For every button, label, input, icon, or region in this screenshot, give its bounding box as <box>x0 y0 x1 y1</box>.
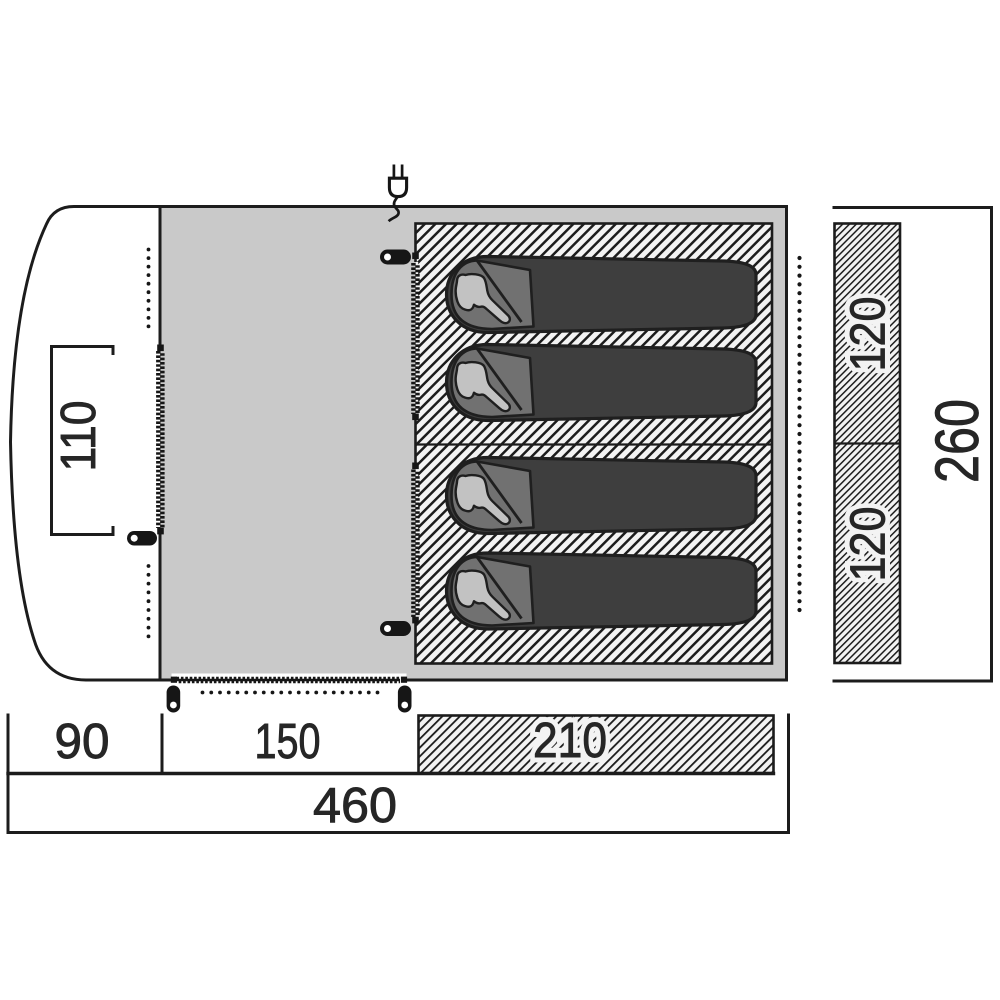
svg-text:150: 150 <box>255 715 321 769</box>
svg-text:110: 110 <box>52 401 106 472</box>
svg-text:90: 90 <box>55 715 110 769</box>
svg-text:120: 120 <box>842 297 896 372</box>
svg-text:210: 210 <box>533 714 607 768</box>
svg-text:260: 260 <box>923 399 991 483</box>
svg-text:120: 120 <box>842 507 896 582</box>
svg-text:460: 460 <box>313 779 397 833</box>
